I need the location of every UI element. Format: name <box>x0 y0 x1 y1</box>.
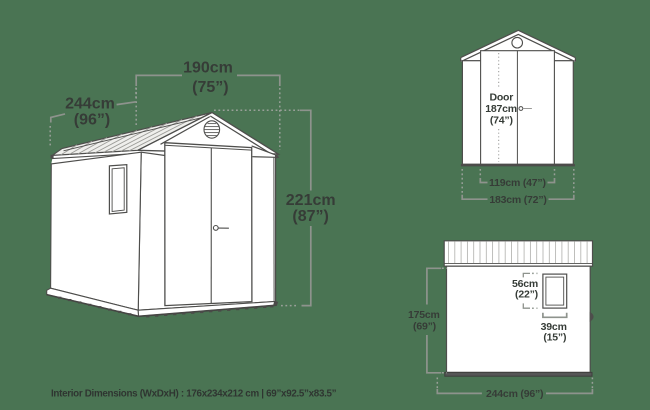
svg-text:183cm (72”): 183cm (72”) <box>489 194 546 206</box>
svg-text:221cm: 221cm <box>286 192 336 209</box>
svg-text:Door: Door <box>489 91 513 103</box>
svg-text:Interior Dimensions (WxDxH) :: Interior Dimensions (WxDxH) : 176x234x21… <box>51 388 337 399</box>
svg-text:(87”): (87”) <box>292 208 328 225</box>
svg-text:(75”): (75”) <box>192 79 228 96</box>
svg-text:(69”): (69”) <box>413 321 436 333</box>
svg-text:(22”): (22”) <box>515 289 538 301</box>
svg-text:244cm (96”): 244cm (96”) <box>486 388 543 400</box>
svg-text:244cm: 244cm <box>65 96 115 113</box>
svg-text:(15”): (15”) <box>543 331 566 343</box>
svg-text:119cm (47”): 119cm (47”) <box>489 177 546 189</box>
svg-text:(96”): (96”) <box>74 112 110 129</box>
svg-text:175cm: 175cm <box>408 309 440 321</box>
svg-text:190cm: 190cm <box>183 59 233 76</box>
svg-text:187cm: 187cm <box>485 103 517 115</box>
svg-text:(74”): (74”) <box>490 115 513 127</box>
